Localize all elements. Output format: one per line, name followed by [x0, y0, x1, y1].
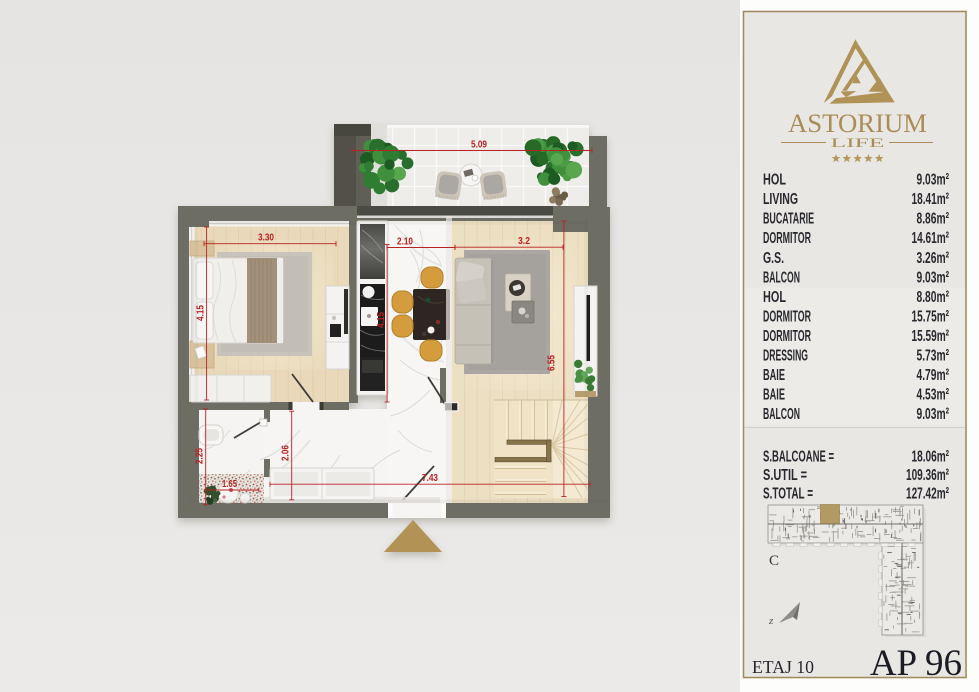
svg-text:BAIE: BAIE [763, 367, 785, 384]
svg-text:BAIE: BAIE [763, 387, 785, 404]
svg-text:4.79m²: 4.79m² [917, 367, 950, 384]
svg-text:DORMITOR: DORMITOR [763, 308, 811, 325]
svg-text:9.03m²: 9.03m² [917, 172, 950, 189]
svg-text:2.10: 2.10 [397, 237, 413, 248]
svg-text:14.61m²: 14.61m² [912, 230, 950, 247]
svg-text:DRESSING: DRESSING [763, 348, 808, 365]
svg-text:7.43: 7.43 [422, 473, 438, 484]
svg-text:15.75m²: 15.75m² [912, 308, 950, 325]
svg-text:LIVING: LIVING [763, 191, 798, 208]
svg-text:G.S.: G.S. [763, 250, 784, 267]
svg-text:4.15: 4.15 [196, 305, 207, 321]
svg-text:AP 96: AP 96 [870, 643, 962, 684]
svg-text:DORMITOR: DORMITOR [763, 230, 811, 247]
svg-text:109.36m²: 109.36m² [906, 467, 949, 484]
svg-text:2.06: 2.06 [281, 445, 292, 461]
svg-text:127.42m²: 127.42m² [906, 486, 949, 503]
svg-text:BALCON: BALCON [763, 269, 800, 286]
svg-text:18.41m²: 18.41m² [912, 191, 950, 208]
svg-text:ETAJ 10: ETAJ 10 [752, 657, 814, 677]
svg-text:BALCON: BALCON [763, 406, 800, 423]
svg-text:3.26m²: 3.26m² [917, 250, 950, 267]
svg-text:1.65: 1.65 [222, 479, 237, 490]
svg-text:15.59m²: 15.59m² [912, 328, 950, 345]
svg-text:4.53m²: 4.53m² [917, 387, 950, 404]
svg-text:HOL: HOL [763, 172, 786, 189]
svg-text:3.30: 3.30 [258, 233, 274, 244]
svg-text:S.UTIL =: S.UTIL = [763, 467, 807, 484]
svg-text:8.80m²: 8.80m² [917, 289, 950, 306]
svg-text:DORMITOR: DORMITOR [763, 328, 811, 345]
svg-text:5.09: 5.09 [471, 140, 487, 151]
svg-text:9.03m²: 9.03m² [917, 406, 950, 423]
svg-text:S.BALCOANE =: S.BALCOANE = [763, 449, 834, 466]
svg-text:C: C [769, 553, 779, 569]
svg-text:8.86m²: 8.86m² [917, 211, 950, 228]
svg-text:9.03m²: 9.03m² [917, 269, 950, 286]
svg-text:ASTORIUM: ASTORIUM [788, 109, 927, 138]
svg-text:3.2: 3.2 [518, 236, 530, 247]
svg-text:LIFE: LIFE [831, 135, 885, 150]
svg-text:4.15: 4.15 [376, 312, 387, 328]
svg-text:5.73m²: 5.73m² [917, 348, 950, 365]
svg-text:18.06m²: 18.06m² [912, 449, 950, 466]
svg-text:z: z [768, 615, 774, 627]
svg-text:2.25: 2.25 [195, 448, 206, 464]
svg-text:BUCATARIE: BUCATARIE [763, 211, 814, 228]
svg-text:6.55: 6.55 [547, 355, 558, 371]
svg-text:HOL: HOL [763, 289, 786, 306]
svg-text:S.TOTAL =: S.TOTAL = [763, 486, 813, 503]
